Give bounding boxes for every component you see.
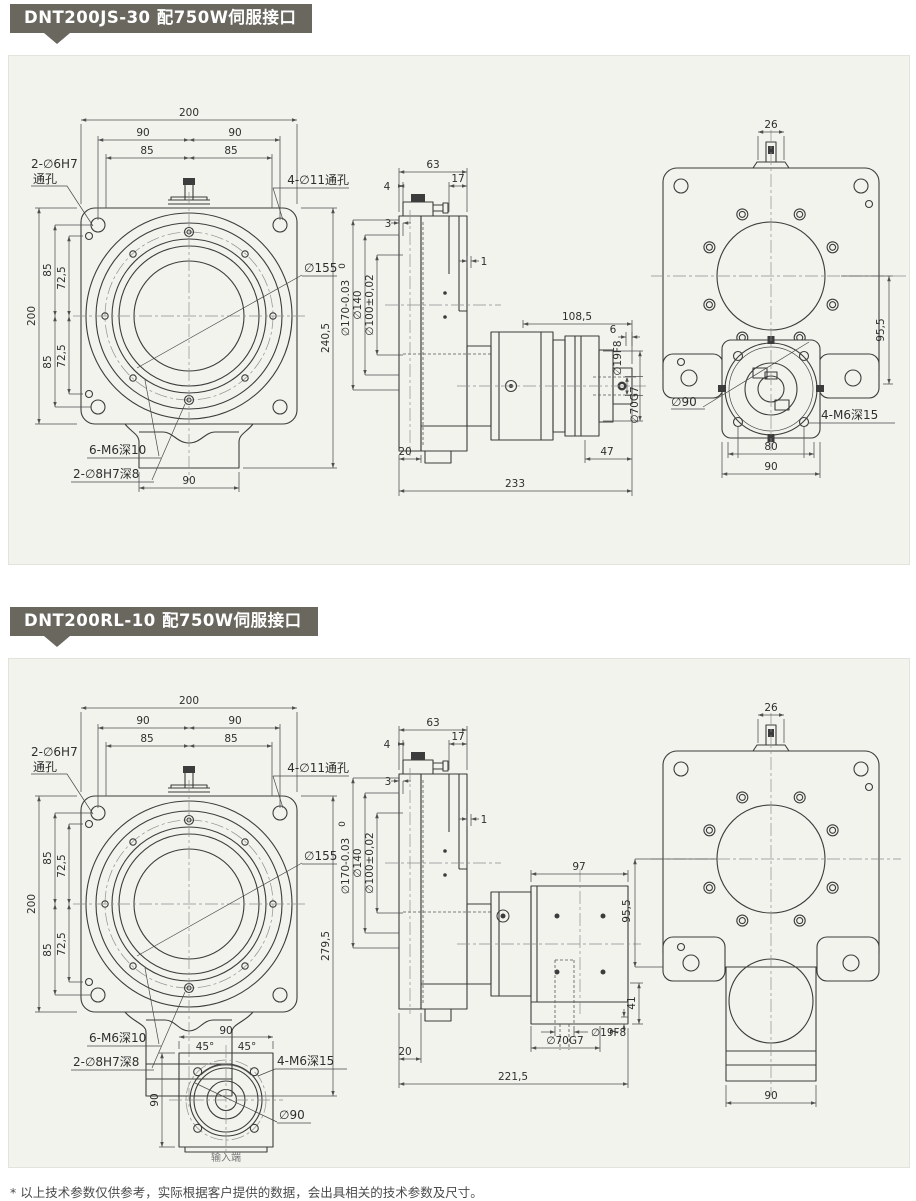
dim-97: 97 [572,861,585,873]
m6-label: 4-M6深15 [821,408,878,422]
m6-label: 4-M6深15 [277,1054,334,1068]
dim-dia70: ∅70G7 [546,1035,583,1047]
dim-left-200: 200 [26,894,38,914]
drawing-panel-2: 200 90 90 85 85 200 85 72,5 85 72,5 279,… [8,658,910,1168]
input-body [169,1045,283,1155]
dia90-label: ∅90 [279,1108,305,1122]
dim-dia100: ∅100±0,02 [364,832,376,893]
dim-45r: 45° [238,1041,257,1053]
dim-90l: 90 [136,715,149,727]
model-title-1: DNT200JS-30 配750W伺服接口 [10,4,312,33]
front-view-top: 200 90 90 85 85 200 85 72,5 85 72,5 240,… [21,96,351,526]
dim-90l: 90 [136,127,149,139]
front-centerlines [73,192,305,480]
title-notch-2 [44,636,70,647]
dim-left-85b: 85 [42,943,54,956]
dim-85r: 85 [224,145,237,157]
bolt-circle-label: ∅155 [304,261,337,275]
side-dimensions: 63 4 17 3 1 0 ∅170-0.03 ∅140 ∅100±0,02 1… [338,159,643,496]
input-end-view: 90 90 45° 45° 4-M6深15 ∅90 输入端 [149,1027,349,1165]
dim-955: 95,5 [875,318,887,341]
dim-63: 63 [426,159,439,171]
dim-dia100: ∅100±0,02 [364,274,376,335]
dim-90-top: 90 [219,1025,232,1037]
dia90-label: ∅90 [671,395,697,409]
dim-height: 240,5 [320,323,332,353]
model-title-2: DNT200RL-10 配750W伺服接口 [10,607,318,636]
dim-1085: 108,5 [562,311,592,323]
dowel-label: 2-∅8H7深8 [73,1055,139,1069]
dim-17: 17 [451,173,464,185]
dim-dia70: ∅70G7 [629,386,641,423]
dim-90r: 90 [228,127,241,139]
dim-1: 1 [481,256,488,268]
dim-4: 4 [384,739,391,751]
dim-955: 95,5 [621,899,633,922]
dim-left-200: 200 [26,306,38,326]
dim-90: 90 [764,461,777,473]
pin-hole-label2: 通孔 [33,760,57,774]
dim-90-left: 90 [149,1093,161,1106]
side-view-top: 63 4 17 3 1 0 ∅170-0.03 ∅140 ∅100±0,02 1… [341,106,651,526]
rear-body [651,713,901,1095]
dim-20: 20 [398,1046,411,1058]
side-body [385,752,641,1050]
m6-label: 6-M6深10 [89,1031,146,1045]
dim-20: 20 [398,446,411,458]
dim-left-85a: 85 [42,851,54,864]
corner-hole-label: 4-∅11通孔 [287,173,349,187]
dim-85l: 85 [140,733,153,745]
m6-label: 6-M6深10 [89,443,146,457]
dim-dia170: ∅170-0.03 [340,280,352,336]
dim-left-725b: 72,5 [56,932,68,955]
dim-90: 90 [764,1090,777,1102]
dim-2215: 221,5 [498,1071,528,1083]
dim-dia170: ∅170-0.03 [340,838,352,894]
dim-47: 47 [600,446,613,458]
dim-26: 26 [764,702,778,714]
dim-90r: 90 [228,715,241,727]
dim-200: 200 [179,107,199,119]
dim-dia140: ∅140 [352,848,364,877]
title-notch-1 [44,33,70,44]
dim-80: 80 [764,441,777,453]
dim-left-85b: 85 [42,355,54,368]
bolt-circle-label: ∅155 [304,849,337,863]
dim-height: 279,5 [320,931,332,961]
dim-tol0: 0 [338,263,348,269]
dim-45l: 45° [196,1041,215,1053]
dim-26: 26 [764,119,778,131]
drawing-panel-1: 200 90 90 85 85 200 85 72,5 85 72,5 240,… [8,55,910,565]
dim-left-725b: 72,5 [56,344,68,367]
dim-85r: 85 [224,733,237,745]
front-leaders: 2-∅6H7 通孔 4-∅11通孔 ∅155 6-M6深10 2-∅8H7深8 [31,745,349,1070]
dowel-label: 2-∅8H7深8 [73,467,139,481]
dim-bottom-90: 90 [182,475,195,487]
dim-dia19: ∅19F8 [612,340,624,375]
dim-tol0: 0 [338,821,348,827]
footnote: * 以上技术参数仅供参考，实际根据客户提供的数据，会出具相关的技术参数及尺寸。 [10,1182,483,1201]
dim-200: 200 [179,695,199,707]
corner-hole-label: 4-∅11通孔 [287,761,349,775]
dim-left-725a: 72,5 [56,266,68,289]
front-leaders: 2-∅6H7 通孔 4-∅11通孔 ∅155 6-M6深10 2-∅8H7深8 [31,157,349,482]
dim-233: 233 [505,478,525,490]
side-body [385,194,646,463]
catalog-page: { "page": { "footer": "* 以上技术参数仅供参考，实际根据… [0,0,916,1200]
dim-4: 4 [384,181,391,193]
dim-left-85a: 85 [42,263,54,276]
side-view-bottom: 63 4 17 3 1 0 ∅170-0.03 ∅140 ∅100±0,02 9… [341,664,651,1134]
pin-hole-label: 2-∅6H7 [31,745,78,759]
dim-17: 17 [451,731,464,743]
pin-hole-label: 2-∅6H7 [31,157,78,171]
dim-85l: 85 [140,145,153,157]
pin-hole-label2: 通孔 [33,172,57,186]
rear-view-top: 26 95,5 ∅90 4-M6深15 80 90 [641,116,916,516]
gearbox-assembly [467,886,628,1050]
dim-left-725a: 72,5 [56,854,68,877]
dim-6: 6 [610,324,617,336]
input-end-caption: 输入端 [211,1151,241,1164]
dim-1: 1 [481,814,488,826]
rear-view-bottom: 26 95,5 90 [621,699,916,1139]
dim-dia140: ∅140 [352,290,364,319]
dim-63: 63 [426,717,439,729]
